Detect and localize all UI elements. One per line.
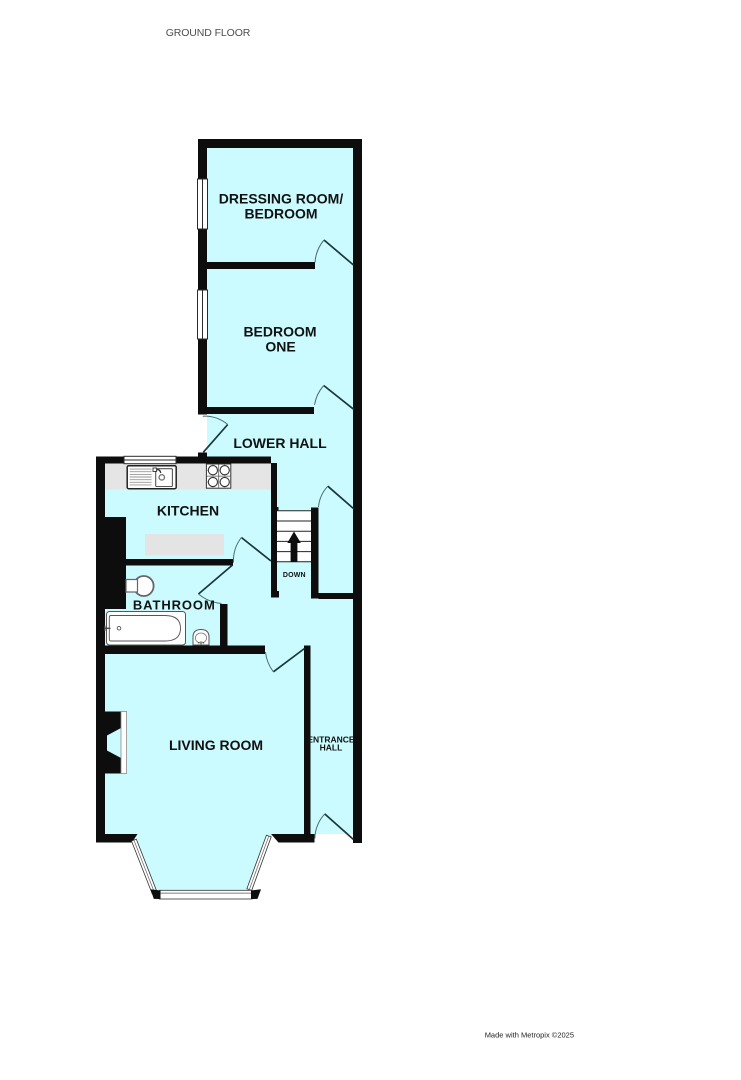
svg-text:ONE: ONE [265, 339, 295, 355]
svg-text:BEDROOM: BEDROOM [243, 324, 316, 340]
svg-text:BATHROOM: BATHROOM [133, 598, 216, 613]
svg-text:GROUND FLOOR: GROUND FLOOR [166, 27, 251, 39]
svg-text:LOWER HALL: LOWER HALL [233, 435, 327, 451]
svg-text:Made with Metropix ©2025: Made with Metropix ©2025 [485, 1031, 574, 1040]
svg-text:HALL: HALL [320, 742, 343, 752]
svg-text:KITCHEN: KITCHEN [157, 503, 219, 519]
svg-text:BEDROOM: BEDROOM [244, 206, 317, 222]
svg-text:DOWN: DOWN [283, 572, 306, 579]
svg-text:LIVING ROOM: LIVING ROOM [169, 737, 263, 753]
svg-text:DRESSING ROOM/: DRESSING ROOM/ [219, 191, 344, 207]
